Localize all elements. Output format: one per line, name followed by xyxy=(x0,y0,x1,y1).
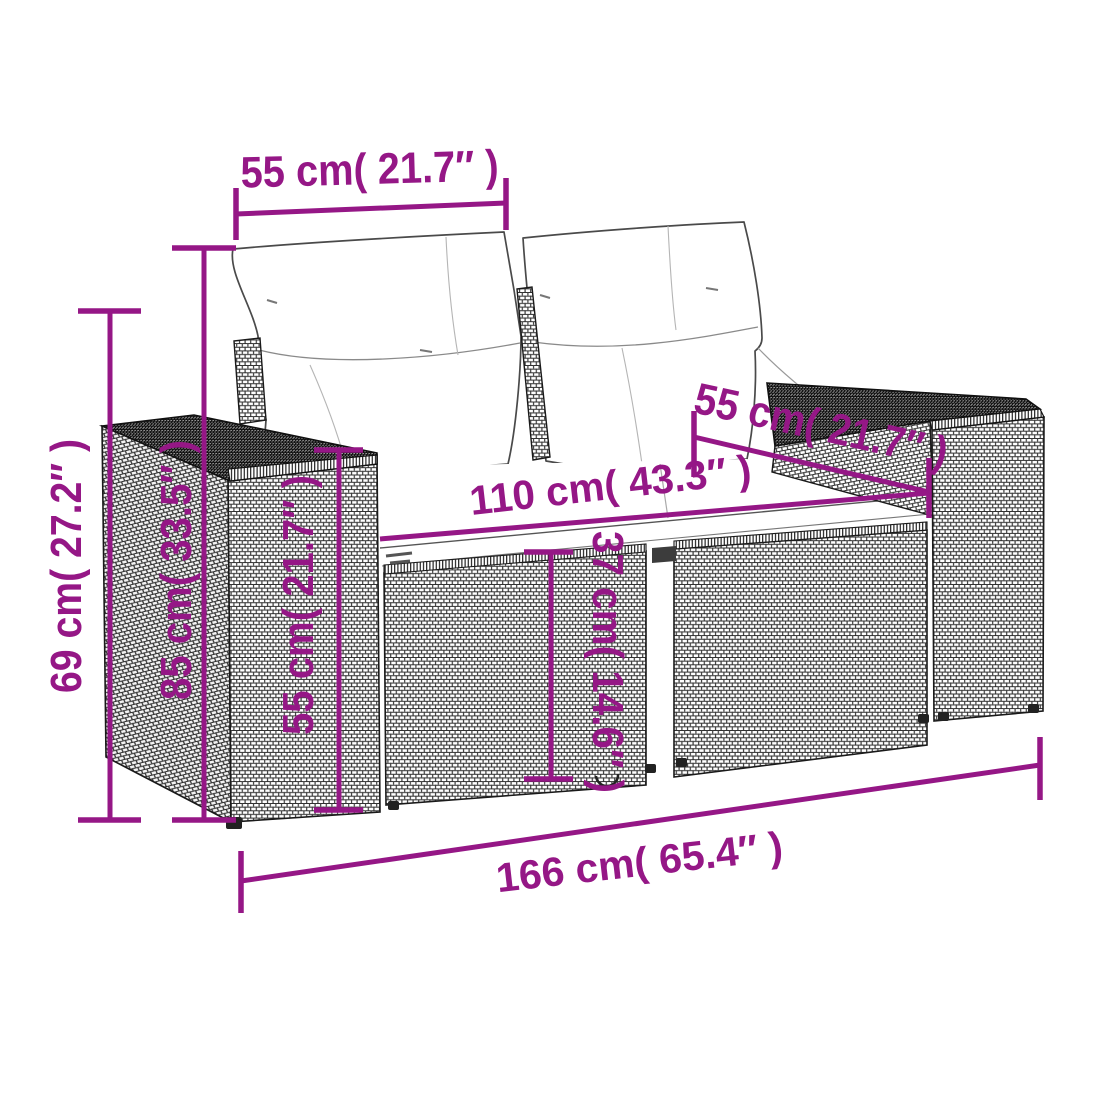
svg-text:55 cm( 21.7″ ): 55 cm( 21.7″ ) xyxy=(274,475,323,735)
svg-text:69 cm( 27.2″ ): 69 cm( 27.2″ ) xyxy=(42,439,91,693)
svg-text:55 cm( 21.7″ ): 55 cm( 21.7″ ) xyxy=(240,141,499,197)
svg-text:37 cm( 14.6″ ): 37 cm( 14.6″ ) xyxy=(583,531,632,793)
svg-text:85 cm( 33.5″ ): 85 cm( 33.5″ ) xyxy=(152,440,201,700)
